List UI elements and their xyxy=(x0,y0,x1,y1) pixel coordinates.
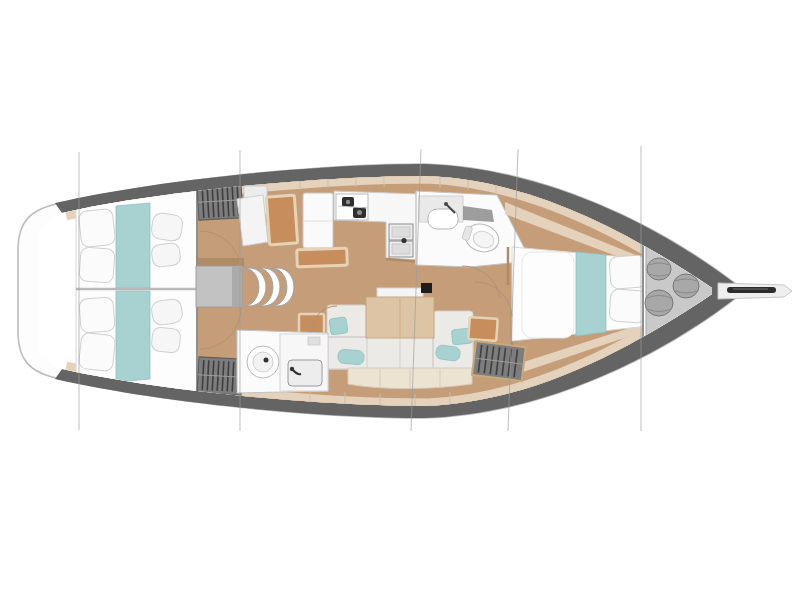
fender-2 xyxy=(673,274,699,298)
floorplan-canvas: Sailing yacht interior layout - top view… xyxy=(0,0,800,600)
forward-hanging-locker xyxy=(472,341,526,381)
nav-counter xyxy=(237,195,268,246)
forward-berth-teal-runner xyxy=(576,252,606,336)
galley-faucet xyxy=(401,238,406,243)
nav-seat-cushion xyxy=(266,195,297,245)
fender-3 xyxy=(645,290,673,316)
galley-twin-sinks xyxy=(389,224,413,257)
berth-duvet xyxy=(522,252,574,338)
starboard-hanging-locker xyxy=(197,357,243,395)
bowsprit xyxy=(718,283,792,299)
port-berth-teal-runner xyxy=(116,203,150,288)
mast-post xyxy=(421,283,432,293)
yacht-floorplan-page: Sailing yacht interior layout - top view… xyxy=(0,0,800,600)
nav-bench xyxy=(297,248,348,267)
settee-end-pad-right xyxy=(468,317,497,341)
aft-toilet xyxy=(247,346,279,378)
aft-head-sink xyxy=(288,360,322,386)
starboard-berth-teal-runner xyxy=(116,291,150,382)
anchor-bar xyxy=(727,287,776,293)
fender-1 xyxy=(647,258,671,280)
aft-head-accessory xyxy=(308,337,320,345)
